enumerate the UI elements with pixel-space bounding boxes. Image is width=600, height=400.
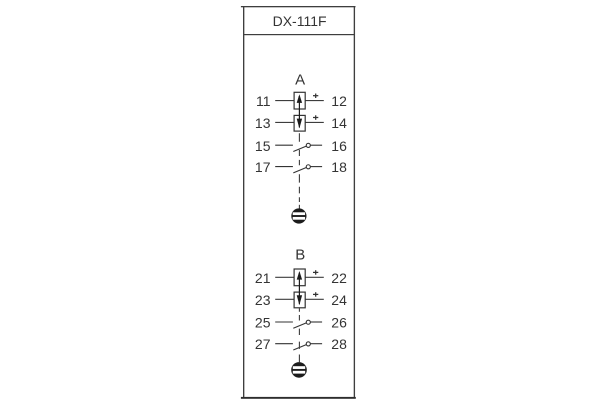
svg-text:25: 25	[255, 315, 271, 331]
svg-text:27: 27	[255, 336, 271, 352]
svg-text:21: 21	[255, 270, 271, 286]
svg-text:12: 12	[331, 93, 347, 109]
svg-text:DX-111F: DX-111F	[273, 14, 327, 29]
svg-text:22: 22	[331, 270, 347, 286]
svg-text:18: 18	[331, 159, 347, 175]
svg-text:B: B	[295, 246, 305, 263]
svg-text:14: 14	[331, 115, 347, 131]
svg-text:28: 28	[331, 336, 347, 352]
svg-text:16: 16	[331, 138, 347, 154]
svg-text:23: 23	[255, 292, 271, 308]
svg-text:24: 24	[331, 292, 347, 308]
svg-text:11: 11	[256, 93, 271, 109]
svg-text:A: A	[295, 71, 305, 88]
svg-text:15: 15	[255, 138, 271, 154]
svg-text:26: 26	[331, 315, 347, 331]
svg-text:17: 17	[255, 159, 271, 175]
svg-text:13: 13	[255, 115, 271, 131]
